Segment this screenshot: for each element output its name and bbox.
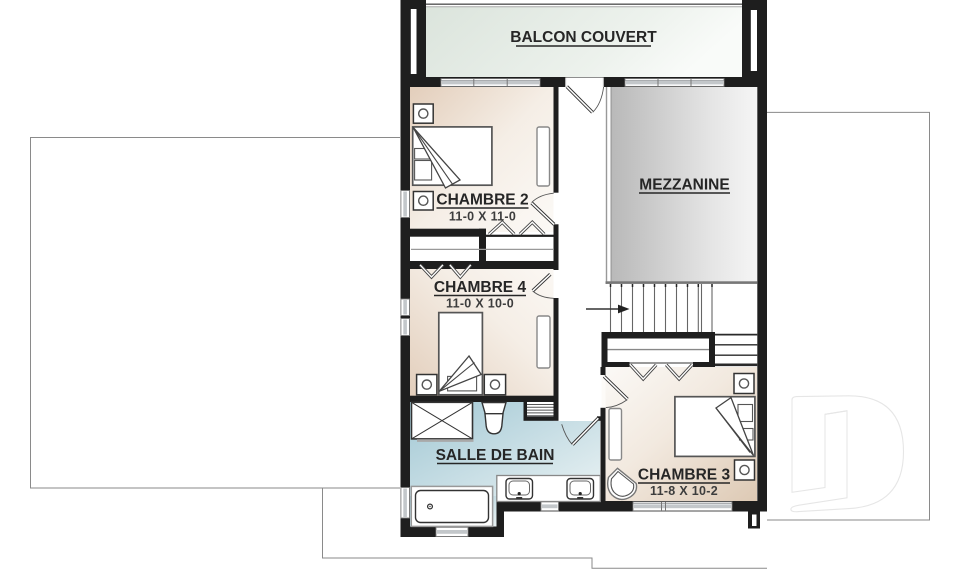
svg-text:CHAMBRE 2: CHAMBRE 2: [436, 192, 528, 209]
svg-text:CHAMBRE 4: CHAMBRE 4: [434, 279, 527, 296]
svg-text:SALLE DE BAIN: SALLE DE BAIN: [436, 447, 555, 464]
svg-text:11-0 X 10-0: 11-0 X 10-0: [446, 297, 514, 311]
svg-text:MEZZANINE: MEZZANINE: [639, 177, 729, 194]
svg-text:CHAMBRE 3: CHAMBRE 3: [638, 467, 731, 484]
svg-text:11-0 X 11-0: 11-0 X 11-0: [449, 210, 516, 224]
svg-text:11-8 X 10-2: 11-8 X 10-2: [650, 484, 718, 498]
svg-text:BALCON COUVERT: BALCON COUVERT: [510, 29, 657, 46]
